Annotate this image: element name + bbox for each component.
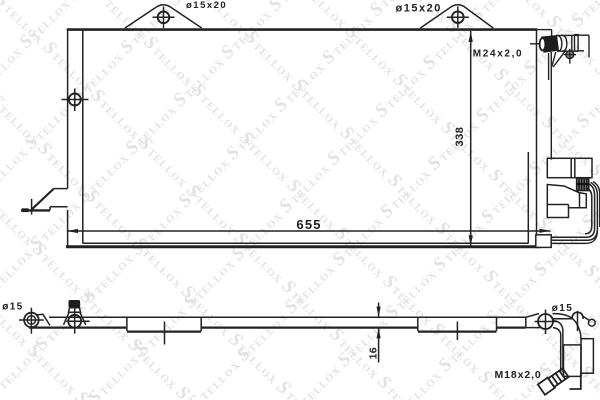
svg-text:ø15x20: ø15x20 bbox=[396, 2, 442, 14]
svg-text:ø15x20: ø15x20 bbox=[186, 0, 227, 11]
svg-text:338: 338 bbox=[454, 127, 466, 147]
svg-text:ø15: ø15 bbox=[2, 301, 23, 312]
svg-text:16: 16 bbox=[367, 347, 379, 359]
svg-text:M24x2,0: M24x2,0 bbox=[473, 49, 523, 60]
svg-text:M18x2,0: M18x2,0 bbox=[495, 369, 542, 381]
svg-text:ø15: ø15 bbox=[552, 303, 573, 314]
svg-text:655: 655 bbox=[296, 217, 321, 232]
